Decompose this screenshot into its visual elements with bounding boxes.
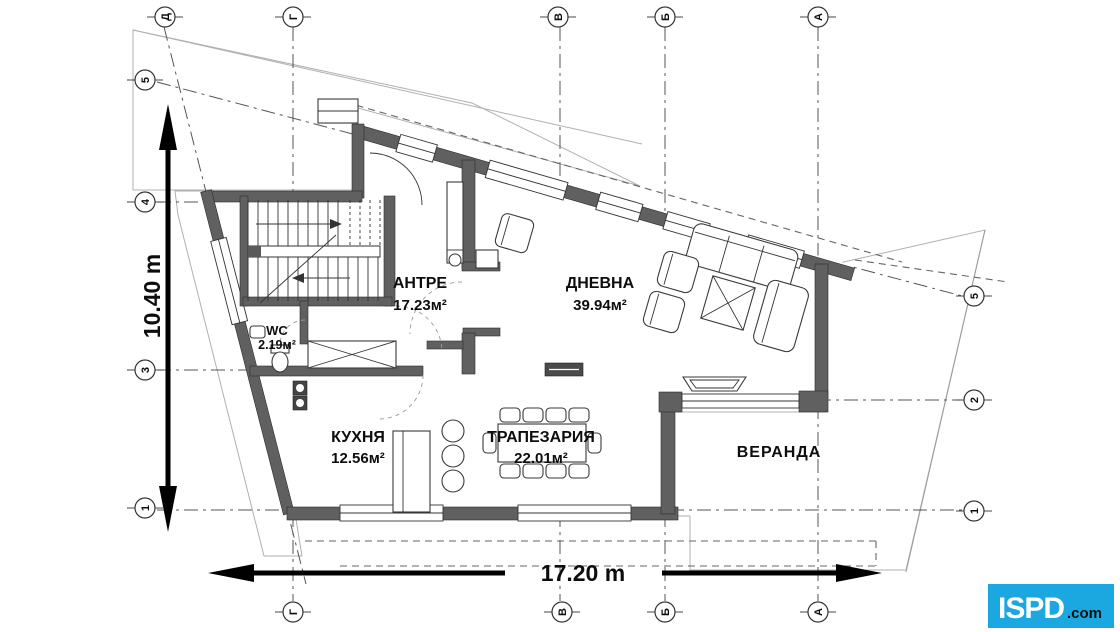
room-label-antre: АНТРЕ [393, 275, 448, 292]
axis-marker-left-3: 3 [127, 360, 163, 380]
svg-text:Д: Д [160, 13, 172, 21]
axis-marker-right-1: 1 [956, 501, 992, 521]
floor-plan-page: АНТРЕ 17.23м² ДНЕВНА 39.94м² WC 2.19м² К… [0, 0, 1120, 632]
axis-marker-top-b: Б [647, 7, 683, 27]
axis-marker-top-v: В [540, 7, 576, 27]
svg-text:4: 4 [140, 198, 152, 205]
veranda-unit [683, 377, 746, 391]
room-label-trapezariya: ТРАПЕЗАРИЯ [487, 429, 595, 446]
axis-marker-right-2: 2 [956, 390, 992, 410]
svg-text:5: 5 [969, 293, 981, 299]
room-label-dnevna: ДНЕВНА [566, 275, 635, 292]
width-dimension-label: 17.20 m [541, 560, 625, 586]
svg-text:Г: Г [288, 13, 300, 20]
axis-marker-bottom-b: Б [647, 602, 683, 622]
bar-stool [442, 420, 464, 442]
svg-text:В: В [553, 13, 565, 21]
understair-storage [308, 341, 396, 368]
height-dimension-label: 10.40 m [139, 254, 165, 338]
axis-marker-top-d: Д [147, 7, 183, 27]
svg-text:1: 1 [969, 508, 981, 514]
svg-text:2: 2 [969, 397, 981, 403]
axis-marker-left-1: 1 [127, 498, 163, 518]
svg-text:Б: Б [660, 13, 672, 21]
cabinet [476, 250, 498, 268]
bar-stool [442, 445, 464, 467]
room-label-kuhnya: КУХНЯ [331, 429, 385, 446]
bar-stool [442, 470, 464, 492]
svg-text:5: 5 [140, 77, 152, 83]
axis-marker-left-5: 5 [127, 70, 163, 90]
svg-text:А: А [813, 13, 825, 21]
logo-suffix: .com [1067, 605, 1102, 622]
floor-plan-image: АНТРЕ 17.23м² ДНЕВНА 39.94м² WC 2.19м² К… [0, 0, 1120, 632]
axis-marker-top-a: А [800, 7, 836, 27]
fireplace [545, 363, 583, 376]
room-area-antre: 17.23м² [393, 297, 447, 314]
logo-text: ISPD [998, 592, 1064, 625]
room-area-dnevna: 39.94м² [573, 297, 627, 314]
svg-text:1: 1 [140, 505, 152, 511]
room-label-wc: WC [266, 323, 288, 338]
room-label-veranda: ВЕРАНДА [737, 444, 822, 461]
axis-marker-bottom-g: Г [275, 602, 311, 622]
wardrobe [447, 182, 463, 263]
room-area-kuhnya: 12.56м² [331, 450, 385, 467]
axis-marker-right-5: 5 [956, 286, 992, 306]
room-area-trapezariya: 22.01м² [514, 450, 568, 467]
svg-text:3: 3 [140, 367, 152, 373]
sink-icon [250, 326, 265, 338]
svg-text:В: В [557, 608, 569, 616]
axis-marker-left-4: 4 [127, 192, 163, 212]
entrance-steps [318, 99, 358, 123]
axis-marker-bottom-v: В [544, 602, 580, 622]
axis-marker-bottom-a: А [800, 602, 836, 622]
svg-text:Г: Г [288, 608, 300, 615]
horizontal-dimension: 17.20 m [208, 560, 882, 586]
room-area-wc: 2.19м² [258, 338, 296, 352]
svg-text:А: А [813, 608, 825, 616]
svg-text:Б: Б [660, 608, 672, 616]
kitchen-island [393, 431, 430, 512]
stool [449, 254, 461, 266]
axis-marker-top-g: Г [275, 7, 311, 27]
site-logo[interactable]: ISPD .com [988, 584, 1114, 628]
vertical-dimension: 10.40 m [139, 104, 177, 532]
